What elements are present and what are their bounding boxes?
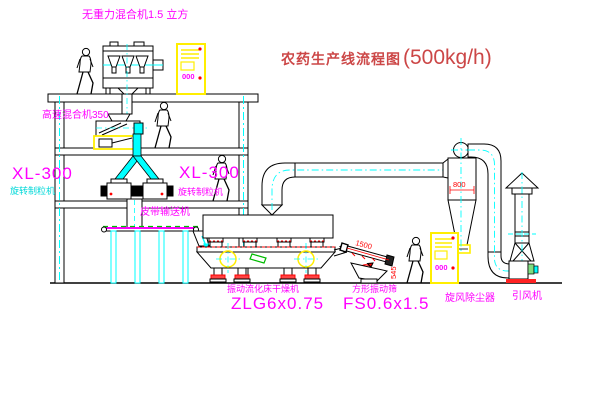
label-fan: 引风机 (512, 292, 542, 302)
dim-cyclone-width: 800 (453, 180, 466, 189)
label-dryer-name: 振动流化床干燥机 (227, 285, 299, 294)
label-granulator-left-model: XL-300 (12, 165, 73, 182)
induced-draft-fan (506, 261, 538, 283)
belt-conveyor (102, 227, 210, 284)
person-ground (407, 237, 423, 283)
flow-diagram-canvas: 000 (0, 0, 600, 403)
title-capacity: (500kg/h) (403, 46, 492, 70)
person-roof (77, 48, 93, 94)
cabinet-ground-display: 000 (435, 263, 448, 272)
label-screen-name: 方形振动筛 (352, 285, 397, 294)
granulator-right (137, 179, 173, 199)
label-screen-model: FS0.6x1.5 (343, 295, 430, 312)
granulator-left (101, 179, 137, 199)
cabinet-roof-display: 000 (182, 72, 195, 81)
page-title: 农药生产线流程图 (500kg/h) (281, 46, 492, 70)
control-cabinet-ground: 000 (431, 233, 458, 283)
control-cabinet-roof: 000 (177, 44, 205, 94)
label-high-speed-mixer: 高速混合机350 (42, 111, 109, 121)
exhaust-duct (262, 163, 447, 210)
label-granulator-right-model: XL-300 (179, 164, 240, 181)
label-gravity-mixer: 无重力混合机1.5 立方 (82, 10, 188, 21)
person-floor2 (155, 102, 171, 148)
label-cyclone: 旋风除尘器 (445, 294, 495, 304)
gravity-free-mixer (103, 42, 163, 114)
label-belt-conveyor: 皮带输送机 (140, 208, 190, 218)
dim-screen-height: 545 (389, 266, 398, 279)
label-dryer-model: ZLG6x0.75 (231, 295, 324, 312)
title-text: 农药生产线流程图 (281, 49, 401, 69)
label-granulator-right-name: 旋转制粒机 (178, 188, 223, 197)
fluid-bed-dryer (197, 205, 347, 282)
label-granulator-left-name: 旋转制粒机 (10, 187, 55, 196)
